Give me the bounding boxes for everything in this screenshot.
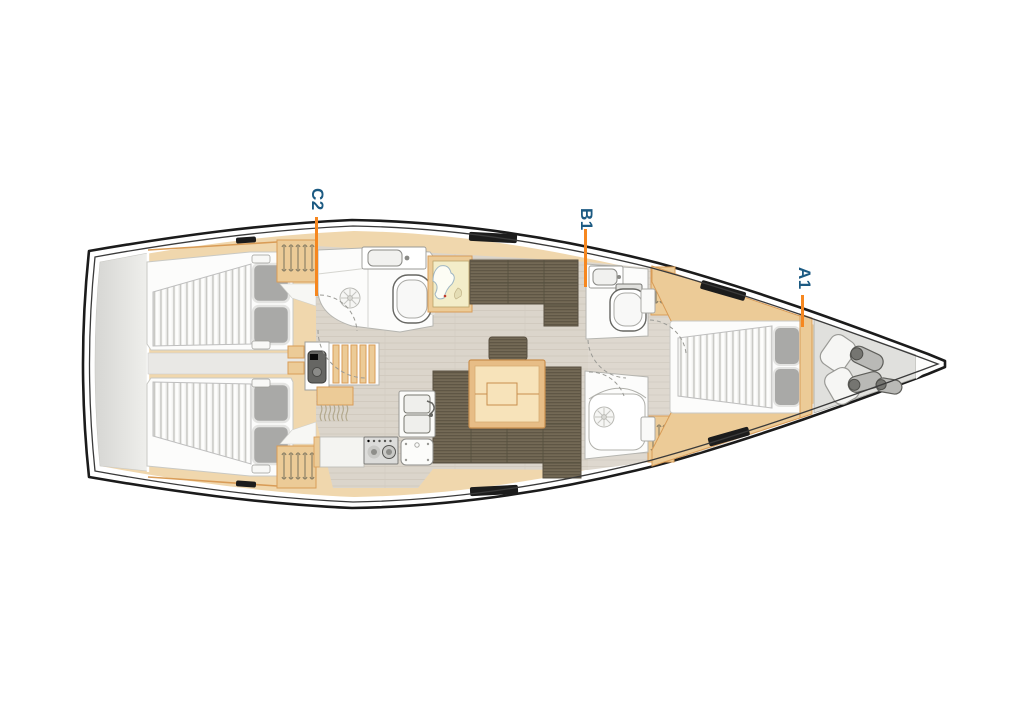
stool-seat (489, 337, 527, 360)
salon-table (469, 360, 545, 428)
yacht-layout-diagram: C2 B1 A1 (0, 0, 1024, 724)
stove (364, 437, 398, 464)
shower-drain-icon (594, 407, 614, 427)
reading-light (252, 255, 270, 263)
reading-light (252, 341, 270, 349)
nightstand (641, 289, 655, 313)
sail-locker (814, 319, 938, 413)
pillow (253, 384, 289, 422)
stern-corridor (148, 353, 310, 374)
label-b1-text: B1 (577, 208, 596, 231)
bow-bulkhead (800, 314, 812, 418)
label-c2-text: C2 (308, 188, 327, 211)
reading-light (252, 465, 270, 473)
pillow (774, 327, 800, 365)
label-a1-text: A1 (795, 267, 814, 290)
nightstand (641, 417, 655, 441)
galley-sink (399, 391, 435, 437)
chart-table (428, 256, 472, 312)
berth-mattress (678, 326, 772, 408)
shower-drain-icon (340, 288, 360, 308)
pillow (253, 306, 289, 344)
companionway-steps (329, 343, 379, 385)
reading-light (252, 379, 270, 387)
galley-appliance (401, 439, 433, 465)
pillow (774, 368, 800, 406)
stern-platform (95, 252, 148, 472)
forward-head-b1 (586, 264, 648, 339)
aft-head (318, 247, 435, 332)
sink-aft-head (362, 247, 426, 269)
